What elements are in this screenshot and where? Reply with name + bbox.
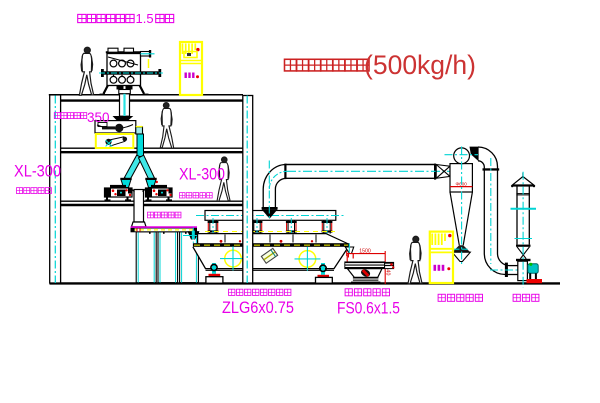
svg-text:ZLG6x0.75: ZLG6x0.75 xyxy=(222,298,294,317)
svg-text:(500kg/h): (500kg/h) xyxy=(364,50,476,80)
svg-text:350: 350 xyxy=(87,110,110,125)
svg-text:XL-300: XL-300 xyxy=(179,165,225,184)
svg-text:1.5: 1.5 xyxy=(136,11,154,26)
svg-text:FS0.6x1.5: FS0.6x1.5 xyxy=(337,299,400,318)
svg-text:XL-300: XL-300 xyxy=(14,162,61,181)
svg-text:1500: 1500 xyxy=(359,248,371,254)
